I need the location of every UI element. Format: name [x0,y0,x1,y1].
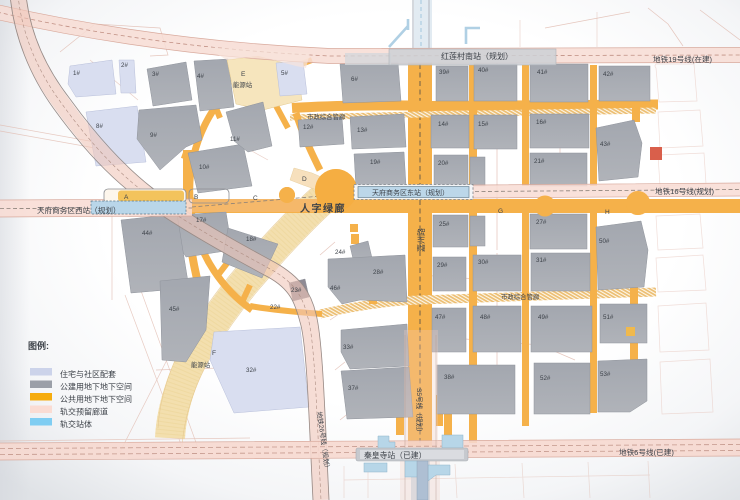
svg-text:公共用地下地下空间: 公共用地下地下空间 [60,394,132,404]
svg-text:44#: 44# [142,230,153,237]
svg-text:27#: 27# [536,219,547,226]
svg-text:46#: 46# [330,285,341,292]
svg-text:9#: 9# [150,132,157,139]
svg-text:13#: 13# [357,127,368,134]
svg-text:S5号线（规划）: S5号线（规划） [415,388,424,436]
svg-text:42#: 42# [603,71,614,78]
svg-text:45#: 45# [169,306,180,313]
svg-text:5#: 5# [281,70,288,77]
svg-text:地铁6号线(已建): 地铁6号线(已建) [619,447,674,457]
svg-text:E: E [241,71,246,78]
svg-text:轨交站体: 轨交站体 [60,419,92,429]
svg-text:18#: 18# [246,236,257,243]
svg-text:43#: 43# [600,141,611,148]
svg-text:图例:: 图例: [28,340,49,351]
svg-text:B: B [194,194,198,201]
svg-text:47#: 47# [435,314,446,321]
svg-text:38#: 38# [444,374,455,381]
svg-text:A: A [124,194,129,201]
svg-text:地铁16号线(规划): 地铁16号线(规划) [655,186,715,196]
svg-text:40#: 40# [478,67,489,74]
svg-text:50#: 50# [599,238,610,245]
svg-text:24#: 24# [335,249,346,256]
svg-text:28#: 28# [373,269,384,276]
svg-text:秦皇寺站（已建）: 秦皇寺站（已建） [364,450,426,460]
svg-text:1#: 1# [73,70,80,77]
svg-text:48#: 48# [480,314,491,321]
svg-text:33#: 33# [343,344,354,351]
svg-text:4#: 4# [197,73,204,80]
svg-text:天府商务区东站（规划）: 天府商务区东站（规划） [372,188,449,197]
svg-text:23#: 23# [291,287,302,294]
svg-text:12#: 12# [303,124,314,131]
svg-text:49#: 49# [538,314,549,321]
svg-text:11#: 11# [230,136,240,143]
svg-text:H: H [605,209,610,216]
svg-text:21#: 21# [534,158,545,165]
svg-text:F: F [212,350,216,357]
svg-text:22#: 22# [270,304,281,311]
svg-text:10#: 10# [199,164,210,171]
svg-text:公建用地下地下空间: 公建用地下地下空间 [60,382,132,392]
svg-text:25#: 25# [439,221,450,228]
svg-text:能源站: 能源站 [191,360,211,369]
svg-text:D: D [302,176,307,183]
svg-text:市政综合管廊: 市政综合管廊 [307,112,346,121]
svg-text:19#: 19# [370,159,381,166]
svg-text:2#: 2# [121,62,128,69]
svg-text:39#: 39# [439,69,450,76]
svg-text:53#: 53# [600,371,611,378]
svg-text:G: G [498,208,503,215]
svg-text:天府商务区西站（规划）: 天府商务区西站（规划） [37,205,121,215]
svg-text:32#: 32# [246,367,257,374]
svg-text:30#: 30# [478,259,489,266]
svg-text:市政综合管廊: 市政综合管廊 [501,292,540,301]
svg-text:3#: 3# [152,71,159,78]
svg-text:31#: 31# [536,257,547,264]
svg-text:15#: 15# [478,121,489,128]
svg-text:8#: 8# [96,123,103,130]
svg-text:红莲村南站（规划）: 红莲村南站（规划） [441,51,513,61]
svg-text:37#: 37# [348,385,359,392]
svg-text:51#: 51# [603,314,614,321]
svg-text:29#: 29# [437,262,448,269]
svg-text:17#: 17# [196,217,207,224]
svg-text:轨交预留廊道: 轨交预留廊道 [60,407,108,417]
svg-text:6#: 6# [351,76,358,83]
svg-text:C: C [253,195,258,202]
svg-text:地铁19号线(在建): 地铁19号线(在建) [653,54,713,64]
svg-text:嘉州路: 嘉州路 [416,228,426,252]
svg-text:52#: 52# [540,375,551,382]
svg-text:人字绿廊: 人字绿廊 [300,202,346,215]
svg-text:住宅与社区配套: 住宅与社区配套 [60,369,116,379]
svg-text:41#: 41# [537,69,548,76]
svg-text:16#: 16# [536,119,547,126]
svg-text:能源站: 能源站 [233,80,253,89]
svg-text:20#: 20# [438,160,449,167]
svg-text:14#: 14# [438,121,449,128]
